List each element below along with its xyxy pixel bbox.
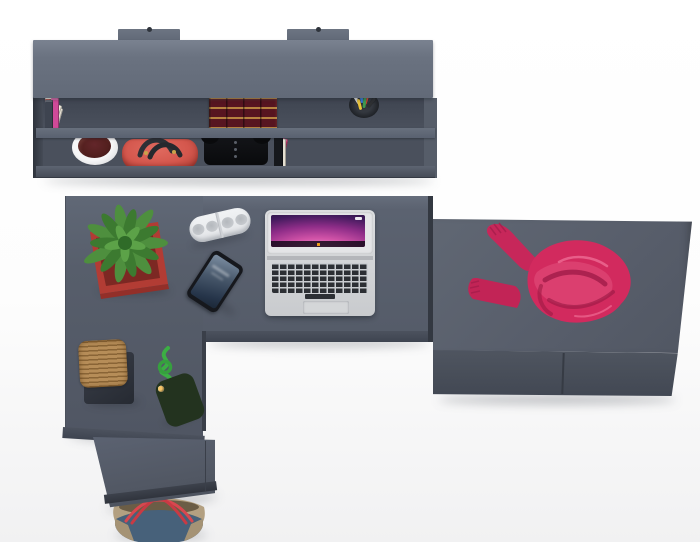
speaker-grille: [221, 216, 235, 229]
device-button: [234, 148, 237, 151]
device-button: [234, 141, 237, 144]
screen-dock: [271, 241, 365, 247]
ottoman-front: [433, 350, 679, 396]
shadow-ottoman: [438, 395, 676, 404]
shelf-mid-edge: [36, 128, 435, 138]
color-dot: [157, 385, 165, 393]
scene-top-view-desk-set: [0, 0, 700, 542]
red-handbag: [122, 133, 198, 169]
macbook-keyboard: [272, 263, 368, 293]
shelf-top-panel: [33, 40, 433, 98]
succulent-plant: [72, 188, 182, 303]
speaker-grille: [234, 213, 248, 226]
color-dot: [362, 97, 366, 108]
macbook-spacebar: [305, 294, 335, 299]
macbook-laptop: [265, 210, 375, 316]
screw-icon: [316, 27, 321, 32]
shelf-bottom-edge: [36, 166, 435, 178]
macbook-screen-wallpaper: [271, 215, 365, 247]
macbook-hinge: [267, 256, 373, 260]
handbag-handles: [122, 133, 198, 169]
book-spine: [274, 135, 283, 168]
speaker-grille: [191, 223, 205, 236]
twine-stool-top: [78, 339, 128, 388]
pedestal-cabinet-seam: [205, 441, 206, 491]
desk-front-edge: [203, 331, 428, 342]
macbook-screen-bezel: [267, 212, 373, 254]
device-button: [234, 155, 237, 158]
screw-icon: [147, 27, 152, 32]
macbook-trackpad: [303, 301, 349, 314]
desk-right-side-edge: [428, 196, 433, 342]
pink-sweater: [463, 220, 643, 340]
screen-menubar-fragment: [355, 217, 362, 220]
color-dot: [317, 243, 320, 246]
books-row-2: [274, 134, 422, 168]
